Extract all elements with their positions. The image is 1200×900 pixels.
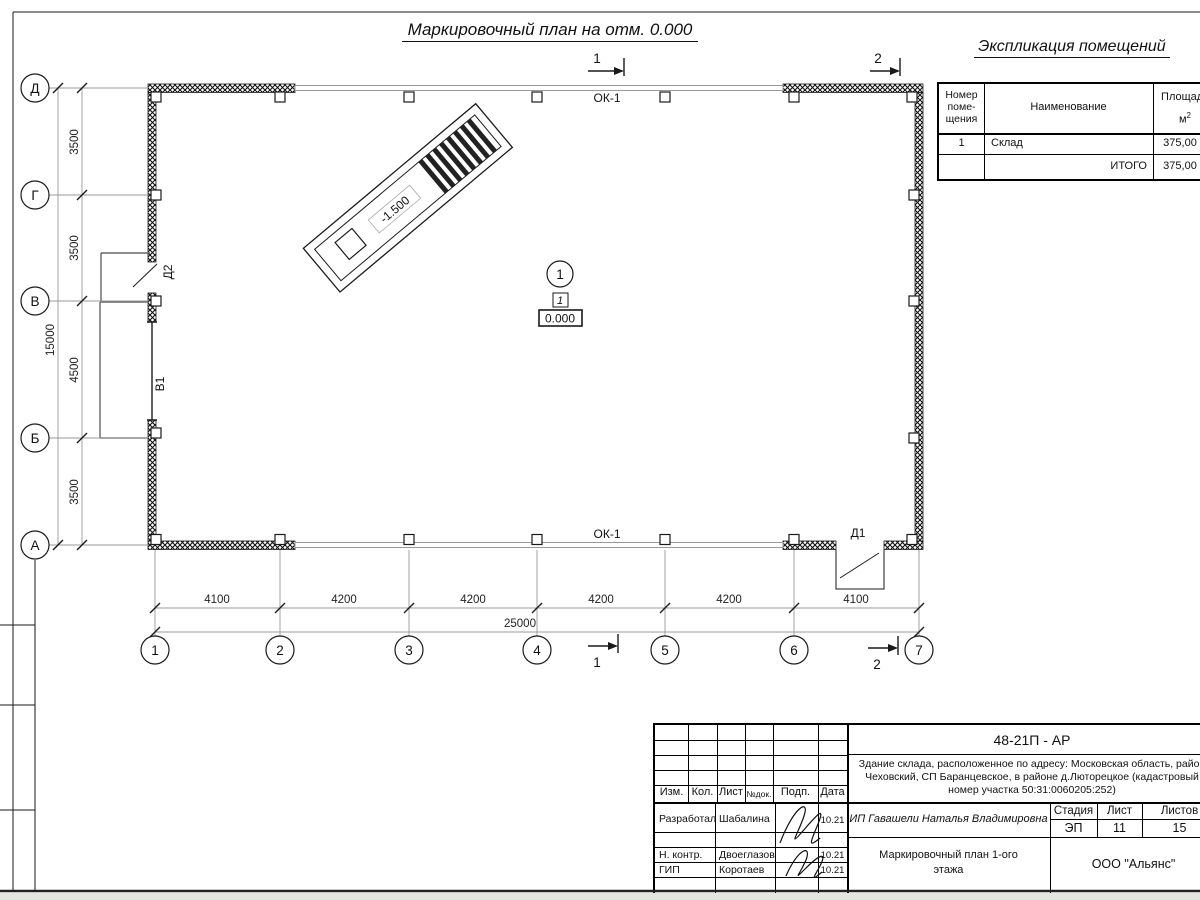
project-description-line1: Здание склада, расположенное по адресу: … (847, 758, 1200, 770)
tb-header-doc: №док. (745, 789, 773, 799)
svg-text:6: 6 (790, 643, 798, 658)
svg-text:В: В (30, 294, 39, 309)
axis-bubbles-horizontal: 1 2 3 4 5 6 7 (141, 636, 933, 664)
axis-bubbles-vertical: Д Г В Б А (21, 74, 49, 559)
dim-h-total: 25000 (504, 618, 536, 630)
tb-line (1050, 819, 1200, 820)
tb-role-1: Разработал (659, 813, 716, 825)
svg-text:3: 3 (405, 643, 413, 658)
tb-header-kol: Кол. (688, 786, 717, 798)
dim-h-6: 4100 (843, 594, 869, 606)
tb-line (655, 877, 847, 878)
gate-v1: В1 (100, 302, 167, 438)
svg-text:1: 1 (151, 643, 159, 658)
axis-bubble-2: 2 (266, 636, 294, 664)
columns (151, 92, 919, 545)
axis-bubble-v: В (21, 287, 49, 315)
door-d1-label: Д1 (851, 526, 866, 540)
room-number-cell: 1 (939, 137, 984, 149)
loading-ramp: -1.500 (303, 104, 512, 292)
company-name: ООО "Альянс" (1050, 857, 1200, 871)
section-mark-2-bottom: 2 (868, 636, 898, 672)
tb-line (847, 837, 1200, 838)
sheets-label: Листов (1142, 805, 1200, 817)
client-name: ИП Гавашели Наталья Владимировна (847, 813, 1050, 825)
tb-name-3: Коротаев (719, 864, 764, 876)
section-mark-1-bottom: 1 (588, 634, 618, 670)
tb-line (655, 862, 847, 863)
dim-v-2: 3500 (69, 235, 81, 261)
svg-text:А: А (30, 538, 39, 553)
svg-text:2: 2 (874, 51, 882, 66)
drawing-title-line1: Маркировочный план 1-ого (847, 849, 1050, 861)
col-header-area: Площадь (1153, 91, 1200, 103)
door-d2: Д2 (101, 253, 175, 301)
svg-text:7: 7 (915, 643, 923, 658)
tb-header-data: Дата (818, 786, 847, 798)
stage-label: Стадия (1050, 805, 1097, 817)
dim-h-1: 4100 (204, 594, 230, 606)
window-label-bottom: ОК-1 (594, 527, 621, 541)
title-block: 48-21П - АР Здание склада, расположенное… (653, 723, 1200, 895)
window-band-top (295, 86, 783, 91)
axis-bubble-4: 4 (523, 636, 551, 664)
tb-line (655, 755, 847, 756)
svg-text:4: 4 (533, 643, 541, 658)
section-mark-2-top: 2 (870, 51, 900, 76)
axis-bubble-7: 7 (905, 636, 933, 664)
axis-bubble-1: 1 (141, 636, 169, 664)
page-title: Маркировочный план на отм. 0.000 (0, 20, 1100, 40)
dimension-ticks (53, 83, 924, 637)
room-name-cell: Склад (991, 137, 1023, 149)
dim-h-4: 4200 (588, 594, 614, 606)
dim-v-4: 3500 (69, 479, 81, 505)
axis-bubble-5: 5 (651, 636, 679, 664)
table-line (939, 133, 1200, 135)
total-area-cell: 375,00 (1153, 160, 1200, 172)
stage-value: ЭП (1050, 821, 1097, 835)
svg-text:Б: Б (31, 431, 40, 446)
window-label-top: ОК-1 (594, 91, 621, 105)
sheets-value: 15 (1142, 821, 1200, 835)
svg-text:2: 2 (873, 657, 881, 672)
svg-text:1: 1 (593, 51, 601, 66)
door-d1: Д1 (836, 526, 884, 589)
tb-date-2: 10.21 (818, 850, 847, 861)
axis-bubble-6: 6 (780, 636, 808, 664)
tb-header-podp: Подп. (773, 786, 818, 798)
section-mark-1-top: 1 (588, 51, 624, 76)
tb-header-list: Лист (717, 786, 745, 798)
dim-v-total: 15000 (45, 324, 57, 356)
room-area-cell: 375,00 (1153, 137, 1200, 149)
col-header-name: Наименование (984, 101, 1153, 113)
tb-line (655, 832, 847, 833)
svg-text:1: 1 (593, 655, 601, 670)
tb-date-3: 10.21 (818, 865, 847, 876)
svg-text:5: 5 (661, 643, 669, 658)
axis-bubble-d: Д (21, 74, 49, 102)
tb-line (655, 802, 847, 804)
tb-name-2: Двоеглазов (719, 849, 775, 861)
ramp-level-label: -1.500 (377, 193, 412, 226)
scan-edge-strip (0, 893, 1200, 900)
table-line (984, 84, 985, 179)
tb-header-izm: Изм. (655, 786, 688, 798)
axis-bubble-a: А (21, 531, 49, 559)
tb-line (775, 804, 776, 893)
table-line (939, 154, 1200, 155)
drawing-title-line2: этажа (847, 864, 1050, 876)
tb-date-1: 10.21 (818, 815, 847, 826)
col-header-area-unit: м2 (1153, 111, 1200, 126)
dim-v-3: 4500 (69, 357, 81, 383)
walls (148, 84, 923, 550)
total-label-cell: ИТОГО (1039, 160, 1147, 172)
room-marker: 1 1 0.000 (539, 261, 582, 326)
svg-text:2: 2 (276, 643, 284, 658)
tb-role-2: Н. контр. (659, 849, 702, 861)
drawing-sheet: Маркировочный план на отм. 0.000 Эксплик… (0, 0, 1200, 900)
svg-text:Г: Г (31, 188, 39, 203)
doc-code: 48-21П - АР (847, 732, 1200, 748)
tb-line (655, 740, 847, 741)
col-header-number: Номер поме- щения (939, 89, 984, 125)
dim-h-2: 4200 (331, 594, 357, 606)
project-description-line2: Чеховский, СП Баранцевское, в районе д.Л… (847, 771, 1200, 783)
section-marks: 1 2 1 2 (588, 51, 900, 672)
axis-bubble-3: 3 (395, 636, 423, 664)
tb-line (847, 754, 1200, 755)
axis-bubble-b: Б (21, 424, 49, 452)
window-bands (295, 86, 783, 548)
axis-lines (49, 88, 919, 636)
tb-line (847, 802, 1200, 804)
ramp-stairs (420, 120, 495, 192)
dim-h-5: 4200 (716, 594, 742, 606)
tb-role-3: ГИП (659, 864, 680, 876)
explication-table: Номер поме- щения Наименование Площадь м… (937, 82, 1200, 181)
dim-h-3: 4200 (460, 594, 486, 606)
tb-name-1: Шабалина (719, 813, 770, 825)
svg-text:Д: Д (30, 81, 39, 96)
tb-line (655, 847, 847, 848)
gate-v1-label: В1 (153, 376, 167, 391)
project-description-line3: номер участка 50:31:0060205:252) (847, 784, 1200, 796)
room-circle-number: 1 (556, 267, 564, 282)
floor-level-label: 0.000 (545, 312, 575, 326)
door-d2-label: Д2 (161, 264, 175, 279)
dim-v-1: 3500 (69, 129, 81, 155)
dimension-labels: 3500 3500 4500 3500 15000 4100 4200 4200… (45, 129, 869, 630)
sheet-label: Лист (1097, 805, 1142, 817)
window-band-bottom (295, 543, 783, 548)
ramp-pit (335, 228, 366, 259)
sheet-value: 11 (1097, 821, 1142, 835)
explication-title: Экспликация помещений (937, 38, 1200, 56)
axis-bubble-g: Г (21, 181, 49, 209)
tb-line (655, 770, 847, 771)
room-tag: 1 (557, 295, 563, 307)
